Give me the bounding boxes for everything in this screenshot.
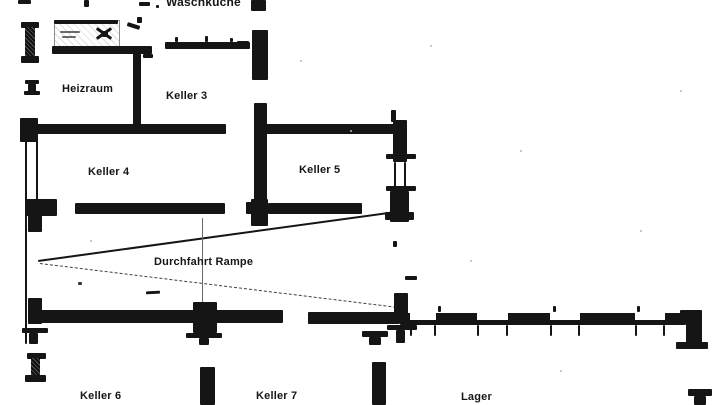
room-label-keller6: Keller 6 xyxy=(80,390,121,402)
scan-speckle xyxy=(470,260,472,262)
arrow-mark xyxy=(137,17,142,23)
scan-mark xyxy=(156,5,159,8)
scan-speckle xyxy=(430,45,432,47)
plan-ink-layer: Waschküche Heizraum Keller 3 Keller 4 Ke… xyxy=(0,0,720,405)
pillar-segment xyxy=(251,0,266,11)
pillar-segment xyxy=(251,199,268,226)
wall-tick xyxy=(230,38,233,42)
pillar-foot-stub xyxy=(396,330,405,343)
wall-ramp-bottom-left xyxy=(28,310,283,323)
corner-block xyxy=(25,199,57,216)
wall-keller5-top xyxy=(266,124,398,134)
window-jamb-tick xyxy=(578,325,580,336)
ramp-line-upper xyxy=(38,211,396,262)
wall-keller5-bottom xyxy=(268,203,362,214)
room-label-lager: Lager xyxy=(461,391,492,403)
window-jamb-tick xyxy=(550,325,552,336)
pillar-foot-stub xyxy=(369,337,381,345)
scan-speckle xyxy=(560,370,562,372)
scan-speckle xyxy=(90,240,92,242)
small-pillar xyxy=(24,91,40,95)
arrow-mark xyxy=(127,22,141,30)
scan-speckle xyxy=(350,130,352,132)
scan-mark xyxy=(78,282,82,285)
window-tick-above xyxy=(553,306,556,312)
window-jamb-tick xyxy=(410,325,412,336)
pillar-segment xyxy=(252,30,268,80)
room-label-heizraum: Heizraum xyxy=(62,83,113,95)
floor-plan-scan: Waschküche Heizraum Keller 3 Keller 4 Ke… xyxy=(0,0,720,405)
pillar-foot-flange xyxy=(676,342,708,349)
window-jamb-tick xyxy=(635,325,637,336)
valve-symbol-center xyxy=(102,31,108,37)
room-label-durchfahrt-rampe: Durchfahrt Rampe xyxy=(154,256,253,268)
wall-tick xyxy=(175,37,178,42)
scan-mark xyxy=(405,276,417,280)
scan-mark xyxy=(84,0,89,7)
pillar-block xyxy=(394,293,408,314)
equipment-box xyxy=(54,20,120,48)
room-label-keller7: Keller 7 xyxy=(256,390,297,402)
pillar-foot-stub xyxy=(29,333,38,344)
pillar-foot-stub xyxy=(199,338,209,345)
scan-speckle xyxy=(520,150,522,152)
window-jamb-tick xyxy=(434,325,436,336)
equipment-hatch-mark xyxy=(60,31,80,33)
wall-heizraum-keller3 xyxy=(133,46,141,126)
window-opening xyxy=(550,313,580,320)
scan-speckle xyxy=(680,90,682,92)
window-opening xyxy=(477,313,508,320)
wall-ramp-bottom-mid xyxy=(308,312,400,324)
ibeam-pillar-stem xyxy=(25,27,35,58)
wall-keller4-bottom xyxy=(75,203,225,214)
ibeam-pillar-bottom-flange xyxy=(21,56,39,63)
window-tick-above xyxy=(637,306,640,312)
room-label-keller3: Keller 3 xyxy=(166,90,207,102)
scan-mark xyxy=(393,241,397,247)
pillar-block xyxy=(193,302,217,333)
window-opening xyxy=(635,313,665,320)
wall-keller4-top xyxy=(35,124,226,134)
window-opening xyxy=(410,313,436,320)
interior-wall-line xyxy=(36,140,38,202)
window-tick-above xyxy=(438,306,441,312)
ibeam-pillar-bottom-flange xyxy=(25,375,46,382)
room-label-keller5: Keller 5 xyxy=(299,164,340,176)
scan-mark xyxy=(237,41,249,46)
equipment-hatch-mark xyxy=(62,36,76,38)
wall-keller6-keller7 xyxy=(200,367,215,405)
scan-mark xyxy=(18,0,31,4)
window-jamb-tick xyxy=(477,325,479,336)
wall-keller7-lager xyxy=(372,362,386,405)
scan-mark xyxy=(139,2,150,6)
scan-speckle xyxy=(300,60,302,62)
equipment-box-top-edge xyxy=(54,20,118,24)
pillar-top-flange xyxy=(688,389,712,396)
wall-tick xyxy=(205,36,208,42)
room-label-waschkueche: Waschküche xyxy=(166,0,241,9)
exterior-wall-line xyxy=(25,132,27,344)
wall-tick xyxy=(143,54,153,58)
scan-mark xyxy=(146,291,160,295)
pillar-stem xyxy=(694,396,706,405)
window-jamb-tick xyxy=(506,325,508,336)
scan-speckle xyxy=(640,230,642,232)
door-tick xyxy=(386,154,416,159)
room-label-keller4: Keller 4 xyxy=(88,166,129,178)
ramp-line-lower-dashed xyxy=(40,263,396,308)
window-jamb-tick xyxy=(663,325,665,336)
